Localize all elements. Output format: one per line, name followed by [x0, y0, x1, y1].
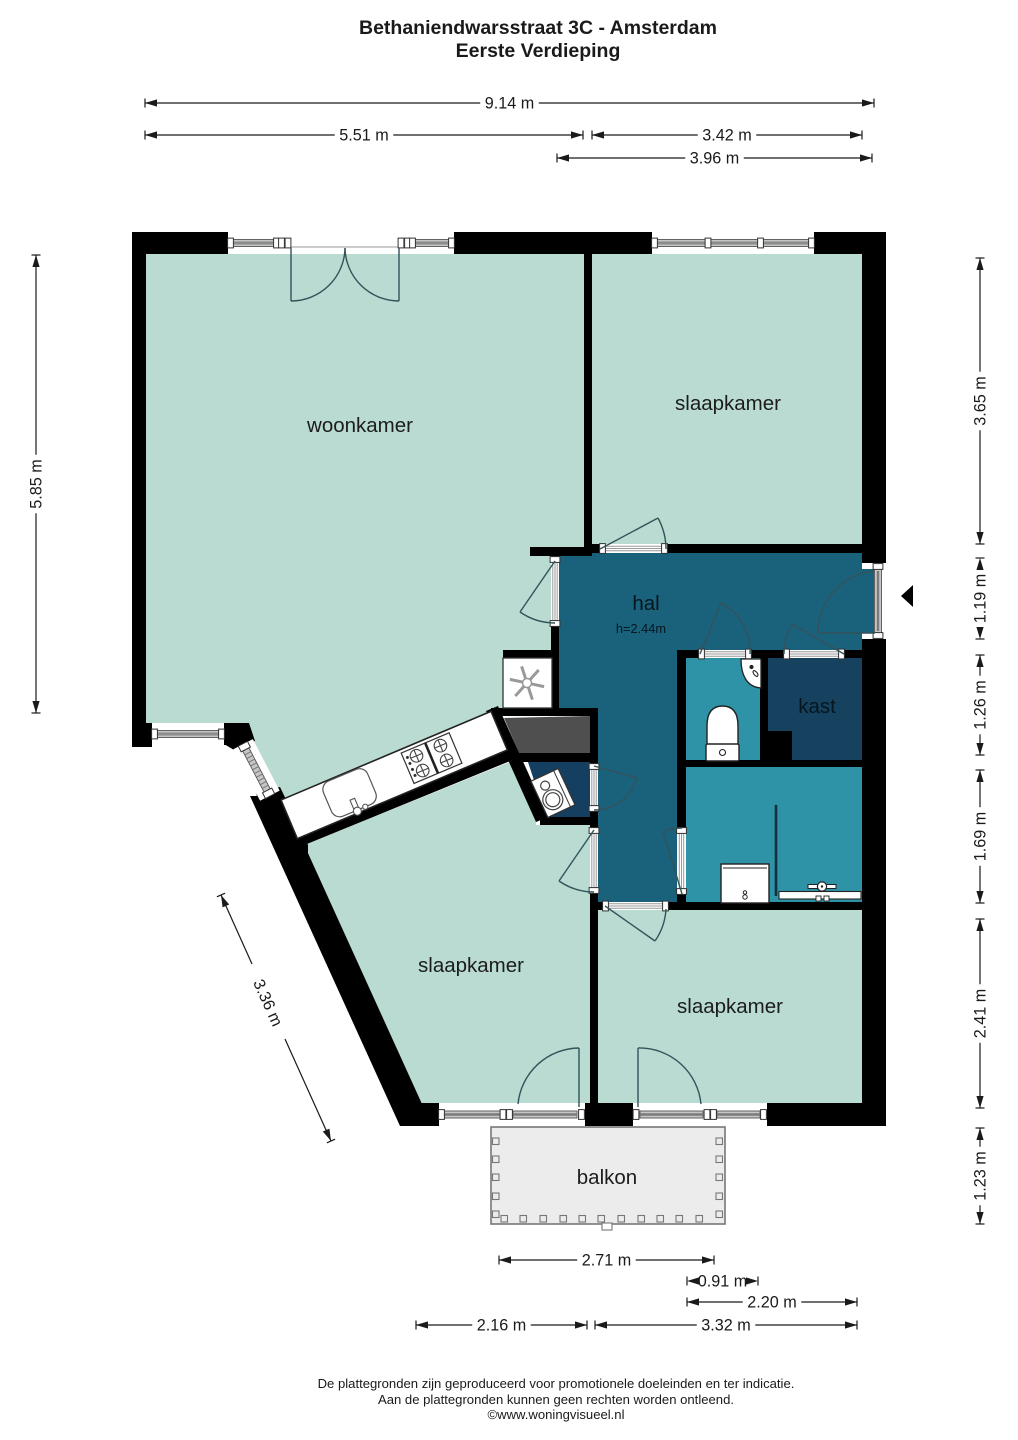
svg-text:5.85 m: 5.85 m [28, 459, 46, 509]
svg-text:9.14 m: 9.14 m [485, 95, 535, 113]
svg-text:2.16 m: 2.16 m [477, 1317, 527, 1335]
svg-text:5.51 m: 5.51 m [339, 127, 389, 145]
svg-text:3.32 m: 3.32 m [701, 1317, 751, 1335]
svg-text:3.65 m: 3.65 m [972, 376, 990, 426]
svg-text:hal: hal [632, 592, 659, 615]
svg-text:Aan de plattegronden kunnen ge: Aan de plattegronden kunnen geen rechten… [378, 1392, 734, 1407]
svg-text:h=2.44m: h=2.44m [616, 621, 666, 636]
svg-text:balkon: balkon [577, 1166, 637, 1189]
svg-text:©www.woningvisueel.nl: ©www.woningvisueel.nl [487, 1407, 624, 1422]
svg-text:1.69 m: 1.69 m [972, 812, 990, 862]
svg-text:2.41 m: 2.41 m [972, 989, 990, 1039]
svg-text:3.42 m: 3.42 m [702, 127, 752, 145]
svg-text:2.20 m: 2.20 m [747, 1294, 797, 1312]
svg-text:Bethaniendwarsstraat 3C - Amst: Bethaniendwarsstraat 3C - Amsterdam [359, 17, 717, 39]
svg-text:De plattegronden zijn geproduc: De plattegronden zijn geproduceerd voor … [318, 1376, 795, 1391]
svg-text:slaapkamer: slaapkamer [675, 392, 781, 415]
svg-text:0.91 m: 0.91 m [698, 1273, 748, 1291]
svg-text:3.96 m: 3.96 m [690, 150, 740, 168]
svg-text:slaapkamer: slaapkamer [418, 954, 524, 977]
svg-text:woonkamer: woonkamer [306, 414, 413, 437]
svg-text:Eerste Verdieping: Eerste Verdieping [456, 40, 621, 62]
svg-text:1.19 m: 1.19 m [972, 574, 990, 624]
svg-text:1.26 m: 1.26 m [972, 680, 990, 730]
svg-text:2.71 m: 2.71 m [582, 1252, 632, 1270]
svg-text:1.23 m: 1.23 m [972, 1151, 990, 1201]
svg-text:slaapkamer: slaapkamer [677, 995, 783, 1018]
svg-text:kast: kast [798, 695, 836, 718]
